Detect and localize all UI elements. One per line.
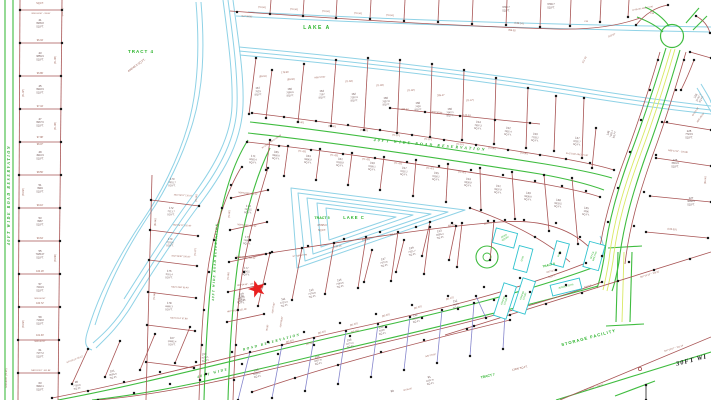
lot-area-unit: SQ.FT. bbox=[286, 94, 294, 98]
lot-area-unit: SQ.FT. bbox=[573, 143, 581, 147]
survey-node-dot bbox=[243, 271, 245, 273]
lot-divider-line bbox=[554, 96, 556, 151]
survey-node-dot bbox=[539, 154, 541, 156]
survey-node-dot bbox=[555, 222, 557, 224]
dimension-label: N90°14'12" - 104.85' bbox=[668, 150, 689, 154]
survey-node-dot bbox=[494, 119, 496, 121]
dimension-label: 358.05' bbox=[508, 29, 517, 33]
lot-area-unit: SQ.FT. bbox=[168, 343, 176, 346]
survey-node-dot bbox=[147, 291, 149, 293]
survey-node-dot bbox=[283, 175, 285, 177]
survey-node-dot bbox=[657, 59, 659, 61]
survey-node-dot bbox=[661, 121, 663, 123]
survey-node-dot bbox=[667, 4, 669, 6]
lot-divider-line bbox=[540, 0, 541, 27]
survey-node-dot bbox=[383, 156, 385, 158]
lot-area-unit: SQ.FT. bbox=[36, 124, 44, 127]
survey-node-dot bbox=[539, 26, 541, 28]
survey-node-dot bbox=[559, 252, 561, 254]
lot-divider-line bbox=[364, 250, 372, 282]
dimension-label: (138.24') bbox=[514, 22, 524, 26]
survey-node-dot bbox=[269, 139, 271, 141]
survey-node-dot bbox=[60, 75, 62, 77]
dimension-label: (81.00') bbox=[414, 305, 423, 310]
survey-node-dot bbox=[581, 292, 583, 294]
lot-area-unit: SQ.FT. bbox=[453, 305, 461, 310]
survey-node-dot bbox=[599, 196, 601, 198]
dimension-label: (70.32') bbox=[22, 320, 25, 328]
survey-node-dot bbox=[229, 229, 231, 231]
survey-node-dot bbox=[385, 326, 387, 328]
survey-node-dot bbox=[607, 221, 609, 223]
survey-node-dot bbox=[689, 51, 691, 53]
survey-node-dot bbox=[380, 351, 382, 353]
survey-node-dot bbox=[251, 112, 253, 114]
survey-node-dot bbox=[683, 59, 685, 61]
road-center-line bbox=[622, 252, 624, 322]
dimension-label: (89.92) bbox=[287, 78, 295, 82]
area-name-label: TRACT 5 bbox=[314, 216, 329, 220]
survey-node-dot bbox=[294, 377, 296, 379]
survey-node-dot bbox=[390, 280, 392, 282]
dimension-label: (71.43') bbox=[298, 150, 307, 154]
survey-node-dot bbox=[367, 57, 369, 59]
lot-divider-line bbox=[266, 70, 272, 118]
road-edge-line bbox=[645, 7, 669, 26]
dimension-label: (71.00') bbox=[54, 122, 57, 130]
dimension-label: N00°40'26" (73.45') bbox=[6, 368, 8, 387]
lot-divider-line bbox=[628, 0, 629, 17]
survey-node-dot bbox=[429, 221, 431, 223]
survey-node-dot bbox=[154, 333, 156, 335]
lot-area-unit: SQ.FT. bbox=[446, 114, 454, 118]
dimension-label: (89.91) bbox=[259, 75, 267, 79]
lot-divider-line bbox=[476, 296, 486, 318]
dimension-label: SQ.FT. bbox=[318, 228, 326, 232]
dimension-label: N90°00'00" - 95.80' bbox=[32, 13, 51, 15]
lot-divider-line bbox=[371, 324, 378, 377]
survey-node-dot bbox=[370, 376, 372, 378]
survey-node-dot bbox=[193, 367, 195, 369]
dimension-label: N25°09'29" bbox=[280, 316, 284, 327]
dimension-label: 97.44' bbox=[37, 105, 44, 108]
dimension-label: (71.96') bbox=[195, 194, 199, 202]
survey-node-dot bbox=[266, 221, 268, 223]
lot-area-unit: SQ.FT. bbox=[249, 161, 257, 165]
dimension-label: N93°19'14" 97.88' bbox=[170, 318, 188, 321]
area-name-label: STORAGE FACILITY bbox=[561, 328, 617, 347]
lot-area-unit: SQ.FT. bbox=[36, 355, 44, 358]
lot-divider-line bbox=[526, 88, 528, 148]
road-name-label: 40FT WIDE ROAD RESERVATION bbox=[6, 145, 11, 246]
lot-area-unit: SQ.FT. bbox=[36, 322, 44, 325]
lot-area-unit: SQ.FT. bbox=[413, 319, 421, 324]
lot-area-unit: SQ.FT. bbox=[382, 103, 390, 107]
dimension-label: 179.83' bbox=[281, 71, 290, 75]
lot-area-unit: SQ.FT. bbox=[368, 168, 376, 172]
lot-divider-line bbox=[462, 70, 464, 140]
survey-node-dot bbox=[313, 337, 315, 339]
dimension-label: (83.00') bbox=[318, 330, 327, 335]
lot-area-unit: SQ.FT. bbox=[524, 198, 532, 202]
lot-number: 89 bbox=[390, 389, 394, 394]
lot-area-unit: SQ.FT. bbox=[36, 91, 44, 94]
dimension-label: N89°20'53" -101.86' bbox=[31, 370, 51, 372]
lot-area-unit: SQ.FT. bbox=[671, 165, 679, 168]
dimension-label: (71.53') bbox=[345, 80, 353, 84]
lot-area-unit: SQ.FT. bbox=[36, 190, 44, 193]
lot-area-unit: SQ.FT. bbox=[244, 211, 252, 215]
lot-area-unit: SQ.FT. bbox=[315, 361, 323, 366]
survey-node-dot bbox=[415, 226, 417, 228]
survey-node-dot bbox=[577, 243, 579, 245]
dimension-label: (71.90') bbox=[228, 210, 232, 218]
survey-node-dot bbox=[421, 317, 423, 319]
water-shoreline bbox=[86, 2, 198, 350]
survey-node-dot bbox=[59, 273, 61, 275]
lot-divider-line bbox=[656, 158, 711, 166]
survey-node-dot bbox=[365, 236, 367, 238]
survey-node-dot bbox=[17, 372, 19, 374]
lot-area-unit: SQ.FT. bbox=[165, 308, 173, 311]
survey-node-dot bbox=[495, 77, 497, 79]
survey-node-dot bbox=[707, 237, 709, 239]
dimension-label: (71.98') bbox=[227, 272, 231, 280]
survey-node-dot bbox=[195, 297, 197, 299]
dimension-label: N47°20'07" - 191.24' bbox=[664, 345, 684, 353]
lot-divider-line bbox=[437, 310, 442, 363]
survey-node-dot bbox=[466, 328, 468, 330]
survey-node-dot bbox=[58, 372, 60, 374]
survey-node-dot bbox=[469, 355, 471, 357]
survey-node-dot bbox=[205, 373, 207, 375]
dimension-label: (71.57') bbox=[392, 134, 401, 138]
survey-node-dot bbox=[645, 384, 647, 386]
lot-divider-line bbox=[303, 0, 304, 15]
survey-node-dot bbox=[267, 341, 269, 343]
survey-node-dot bbox=[483, 286, 485, 288]
dimension-label: R=170.00' ARC=71.30' bbox=[566, 152, 589, 157]
survey-node-dot bbox=[396, 132, 398, 134]
dimension-label: (70.04') bbox=[386, 14, 394, 18]
survey-node-dot bbox=[461, 222, 463, 224]
lot-divider-line bbox=[494, 78, 496, 144]
survey-node-dot bbox=[18, 240, 20, 242]
survey-node-dot bbox=[19, 9, 21, 11]
survey-node-dot bbox=[231, 351, 233, 353]
lot-divider-line bbox=[316, 149, 320, 180]
survey-node-dot bbox=[635, 24, 637, 26]
survey-node-dot bbox=[119, 340, 121, 342]
dimension-label: 99.64' bbox=[37, 237, 44, 240]
survey-node-dot bbox=[595, 127, 597, 129]
lot-divider-line bbox=[396, 240, 404, 272]
survey-node-dot bbox=[281, 344, 283, 346]
survey-node-dot bbox=[197, 235, 199, 237]
survey-node-dot bbox=[480, 209, 482, 211]
survey-node-dot bbox=[437, 21, 439, 23]
lot-divider-line bbox=[348, 153, 352, 185]
dimension-label: (73.38') bbox=[520, 152, 529, 156]
lot-area-unit: SQ.FT. bbox=[110, 376, 118, 380]
survey-node-dot bbox=[534, 180, 536, 182]
lot-divider-line bbox=[572, 178, 578, 244]
survey-node-dot bbox=[196, 265, 198, 267]
survey-node-dot bbox=[198, 205, 200, 207]
lot-divider-line bbox=[151, 200, 199, 206]
lot-divider-line bbox=[380, 157, 384, 190]
survey-node-dot bbox=[146, 324, 148, 326]
lot-area-unit: SQ.FT. bbox=[474, 127, 482, 131]
survey-node-dot bbox=[655, 154, 657, 156]
lot-divider-line bbox=[690, 52, 711, 58]
survey-node-dot bbox=[447, 295, 449, 297]
lot-divider-line bbox=[258, 253, 270, 306]
survey-node-dot bbox=[246, 141, 248, 143]
lot-area-unit: SQ.FT. bbox=[494, 191, 502, 195]
lot-divider-line bbox=[413, 160, 416, 196]
survey-node-dot bbox=[395, 271, 397, 273]
survey-node-dot bbox=[195, 361, 197, 363]
survey-node-dot bbox=[189, 326, 191, 328]
survey-node-dot bbox=[123, 381, 125, 383]
survey-node-dot bbox=[139, 369, 141, 371]
survey-node-dot bbox=[363, 129, 365, 131]
lot-divider-line bbox=[146, 362, 194, 368]
dimension-label: 96.89' bbox=[37, 72, 44, 75]
survey-node-dot bbox=[399, 59, 401, 61]
road-edge-line bbox=[608, 246, 642, 248]
survey-node-dot bbox=[504, 219, 506, 221]
survey-node-dot bbox=[347, 184, 349, 186]
lot-divider-line bbox=[570, 0, 571, 26]
survey-node-circle bbox=[638, 367, 641, 370]
survey-node-dot bbox=[145, 361, 147, 363]
survey-node-dot bbox=[351, 152, 353, 154]
dimension-label: N98°52'05" -112.41' bbox=[238, 192, 258, 196]
survey-node-dot bbox=[301, 247, 303, 249]
survey-node-dot bbox=[335, 59, 337, 61]
dimension-label: N47°20'07" - 236.67' bbox=[584, 384, 604, 392]
survey-node-dot bbox=[545, 303, 547, 305]
survey-node-dot bbox=[133, 392, 135, 394]
survey-node-dot bbox=[436, 362, 438, 364]
dimension-label: 99.10' bbox=[37, 204, 44, 207]
survey-node-dot bbox=[230, 197, 232, 199]
lot-area-unit: SQ.FT. bbox=[464, 184, 472, 188]
lot-area-unit: SQ.FT. bbox=[36, 256, 44, 259]
lot-area-unit: SQ.FT. bbox=[36, 157, 44, 160]
survey-node-dot bbox=[271, 69, 273, 71]
survey-node-dot bbox=[693, 59, 695, 61]
lot-divider-line bbox=[370, 0, 371, 19]
lot-area-unit: SQ.FT. bbox=[504, 133, 512, 137]
survey-node-dot bbox=[271, 397, 273, 399]
survey-node-dot bbox=[241, 363, 243, 365]
dimension-label: 280.56' bbox=[401, 108, 410, 112]
dimension-label: (81.00') bbox=[350, 322, 359, 327]
survey-node-dot bbox=[666, 121, 668, 123]
lot-divider-line bbox=[438, 0, 439, 22]
dimension-label: C38 bbox=[650, 13, 655, 15]
survey-node-dot bbox=[601, 255, 603, 257]
survey-node-dot bbox=[640, 119, 642, 121]
survey-node-dot bbox=[199, 379, 201, 381]
survey-node-dot bbox=[445, 201, 447, 203]
survey-node-dot bbox=[313, 344, 315, 346]
survey-node-dot bbox=[461, 139, 463, 141]
dimension-label: N89°40'20" bbox=[35, 341, 46, 343]
survey-node-dot bbox=[689, 258, 691, 260]
survey-node-dot bbox=[629, 151, 631, 153]
dimension-label: (71.86') bbox=[153, 292, 157, 300]
lot-divider-line bbox=[544, 175, 549, 231]
dimension-label: 123.97' bbox=[608, 33, 617, 39]
survey-node-dot bbox=[201, 344, 203, 346]
survey-node-dot bbox=[645, 231, 647, 233]
survey-node-dot bbox=[233, 379, 235, 381]
survey-node-dot bbox=[459, 115, 461, 117]
lot-area-unit: SQ.FT. bbox=[272, 157, 280, 161]
lot-area-unit: SQ.FT. bbox=[36, 388, 44, 391]
dimension-label: (81.86') bbox=[154, 218, 158, 226]
dimension-label: (71.40') bbox=[328, 125, 337, 129]
survey-node-dot bbox=[633, 225, 635, 227]
survey-node-dot bbox=[448, 259, 450, 261]
survey-node-dot bbox=[271, 251, 273, 253]
survey-node-dot bbox=[447, 163, 449, 165]
dimension-label: (71.42') bbox=[426, 167, 435, 171]
survey-node-dot bbox=[583, 97, 585, 99]
survey-node-dot bbox=[469, 207, 471, 209]
survey-node-dot bbox=[194, 330, 196, 332]
lot-divider-line bbox=[72, 349, 88, 384]
dimension-label: (71.43') bbox=[330, 154, 339, 158]
survey-node-dot bbox=[265, 169, 267, 171]
survey-node-dot bbox=[403, 369, 405, 371]
dimension-label: N94°13'58" 99.40' bbox=[171, 287, 189, 290]
dimension-label: N28°47'08" bbox=[272, 302, 276, 313]
survey-node-dot bbox=[343, 238, 345, 240]
survey-boundary-line bbox=[560, 337, 711, 400]
area-name-label: TRACT 6 bbox=[542, 261, 556, 268]
lot-divider-line bbox=[646, 232, 708, 238]
survey-node-dot bbox=[493, 220, 495, 222]
dimension-label: (71.43') bbox=[394, 162, 403, 166]
dimension-label: N91°24'01" 116.91' bbox=[174, 195, 193, 198]
survey-node-dot bbox=[221, 207, 223, 209]
lot-divider-line bbox=[338, 331, 346, 384]
survey-node-dot bbox=[349, 335, 351, 337]
survey-node-dot bbox=[429, 136, 431, 138]
dimension-label: 64721.5 bbox=[546, 269, 556, 274]
survey-node-dot bbox=[18, 174, 20, 176]
survey-node-dot bbox=[475, 144, 477, 146]
lot-area-unit: SQ.FT. bbox=[612, 130, 617, 138]
lot-divider-line bbox=[270, 0, 271, 13]
dimension-label: R=85.00' ARC=77.90' bbox=[632, 5, 654, 12]
lot-divider-line bbox=[336, 0, 337, 17]
survey-node-dot bbox=[451, 222, 453, 224]
survey-node-dot bbox=[60, 108, 62, 110]
map-viewport[interactable]: OPENCOURTGYMPOOLOFFICEMEETINGJUNGLE GYMF… bbox=[0, 0, 711, 400]
lot-divider-line bbox=[650, 196, 711, 202]
survey-node-dot bbox=[58, 339, 60, 341]
survey-node-dot bbox=[509, 314, 511, 316]
survey-node-dot bbox=[228, 261, 230, 263]
survey-node-dot bbox=[601, 281, 603, 283]
lot-area-unit: SQ.FT. bbox=[242, 273, 250, 277]
survey-node-dot bbox=[59, 306, 61, 308]
survey-node-dot bbox=[412, 195, 414, 197]
area-name-label: TRACT 4 bbox=[128, 49, 154, 54]
dimension-label: (71.07') bbox=[22, 89, 25, 97]
survey-node-dot bbox=[581, 157, 583, 159]
survey-node-dot bbox=[471, 23, 473, 25]
survey-node-dot bbox=[493, 143, 495, 145]
survey-node-dot bbox=[287, 145, 289, 147]
survey-node-dot bbox=[337, 383, 339, 385]
survey-node-dot bbox=[264, 283, 266, 285]
lot-area-unit: SQ.FT. bbox=[36, 289, 44, 292]
survey-node-dot bbox=[571, 177, 573, 179]
survey-node-dot bbox=[403, 20, 405, 22]
dimension-label: N87°25'36" bbox=[425, 354, 436, 358]
survey-node-dot bbox=[585, 190, 587, 192]
survey-node-dot bbox=[319, 148, 321, 150]
survey-node-dot bbox=[423, 273, 425, 275]
survey-node-dot bbox=[527, 87, 529, 89]
lot-area-unit: SQ.FT. bbox=[414, 108, 422, 112]
survey-node-dot bbox=[203, 309, 205, 311]
map-text: 416935.8SQ.FT.436859.9SQ.FT.456918.9SQ.F… bbox=[6, 2, 708, 393]
dimension-label: 96.34' bbox=[37, 39, 44, 42]
survey-node-dot bbox=[502, 348, 504, 350]
lot-area-unit: SQ.FT. bbox=[350, 99, 358, 103]
lot-area-unit: SQ.FT. bbox=[547, 6, 555, 9]
lot-divider-line bbox=[147, 325, 195, 331]
survey-node-dot bbox=[369, 18, 371, 20]
survey-node-dot bbox=[347, 124, 349, 126]
survey-node-dot bbox=[423, 339, 425, 341]
lot-area-unit: SQ.FT. bbox=[337, 285, 345, 289]
dimension-label: (95.19') bbox=[351, 329, 360, 334]
survey-node-dot bbox=[310, 149, 312, 151]
survey-node-dot bbox=[241, 166, 243, 168]
dimension-label: SQ.FT. bbox=[36, 2, 44, 5]
survey-node-dot bbox=[371, 249, 373, 251]
survey-boundary-line bbox=[681, 60, 694, 90]
lot-divider-line bbox=[325, 243, 334, 294]
lot-divider-line bbox=[146, 175, 152, 400]
dimension-label: N27°39'05" bbox=[241, 16, 252, 19]
survey-node-dot bbox=[227, 291, 229, 293]
survey-node-dot bbox=[51, 397, 53, 399]
survey-node-dot bbox=[579, 236, 581, 238]
lot-area-unit: SQ.FT. bbox=[437, 236, 445, 240]
lot-divider-line bbox=[457, 223, 462, 267]
lot-area-unit: SQ.FT. bbox=[379, 331, 387, 336]
survey-node-dot bbox=[87, 348, 89, 350]
road-edge-line bbox=[630, 252, 632, 322]
survey-node-dot bbox=[302, 15, 304, 17]
survey-node-dot bbox=[235, 257, 237, 259]
survey-node-dot bbox=[337, 364, 339, 366]
survey-node-dot bbox=[548, 230, 550, 232]
survey-node-dot bbox=[269, 13, 271, 15]
lot-area-unit: SQ.FT. bbox=[243, 242, 251, 246]
survey-node-dot bbox=[455, 225, 457, 227]
